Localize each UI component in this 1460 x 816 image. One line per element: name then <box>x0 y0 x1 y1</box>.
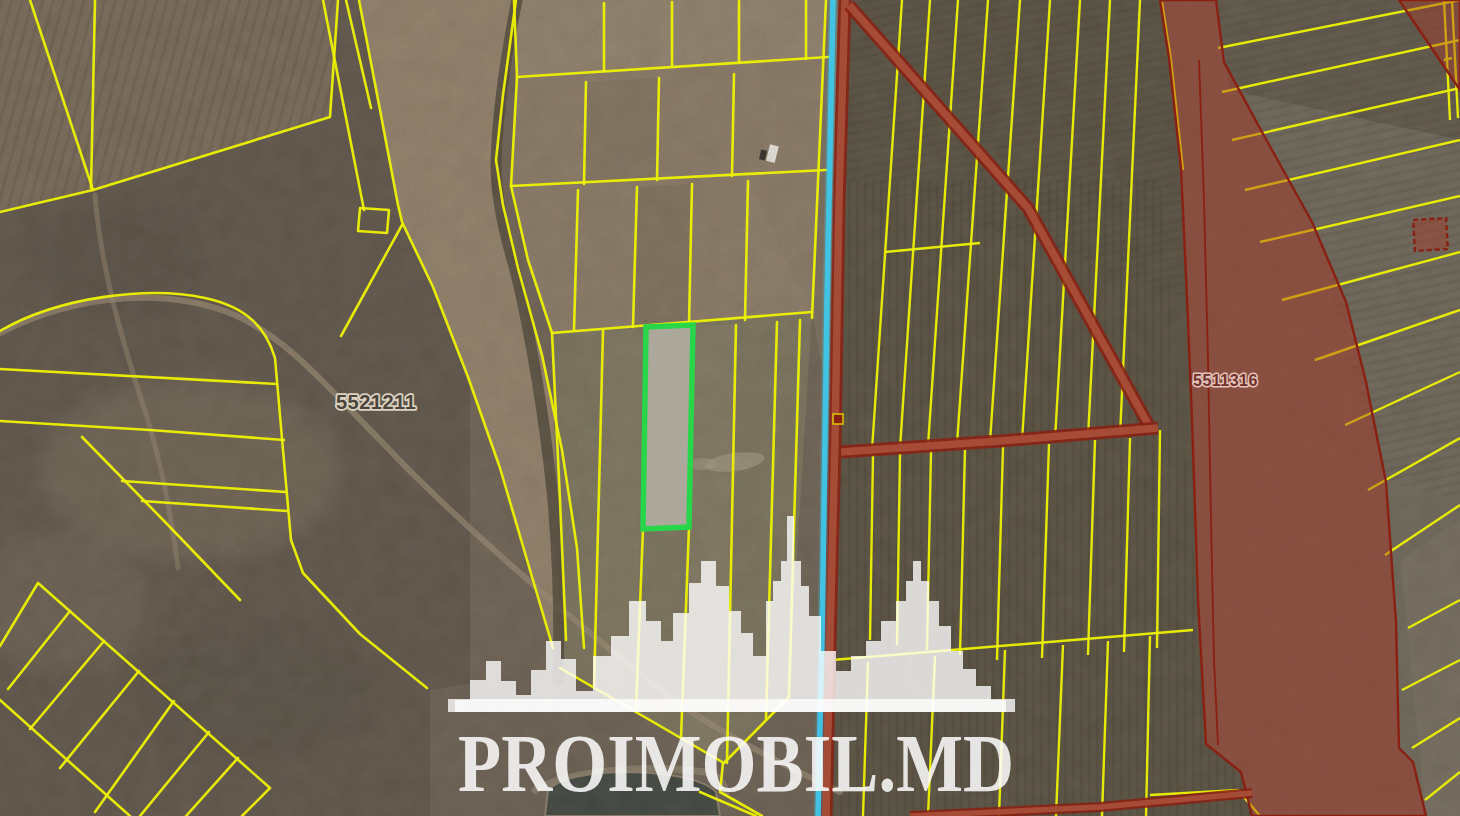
parcel-number-left: 5521211 <box>336 391 416 413</box>
cadastral-map-canvas[interactable]: 5521211 5511316 PROIMOBIL.MD <box>0 0 1460 816</box>
cadastral-map-viewport[interactable]: 5521211 5511316 PROIMOBIL.MD <box>0 0 1460 816</box>
parcel-number-right: 5511316 <box>1193 372 1258 389</box>
restricted-square <box>1413 218 1448 251</box>
watermark-brand-text: PROIMOBIL.MD <box>458 718 1014 809</box>
selected-parcel-highlight[interactable] <box>643 325 693 529</box>
road-node-marker <box>833 414 843 424</box>
